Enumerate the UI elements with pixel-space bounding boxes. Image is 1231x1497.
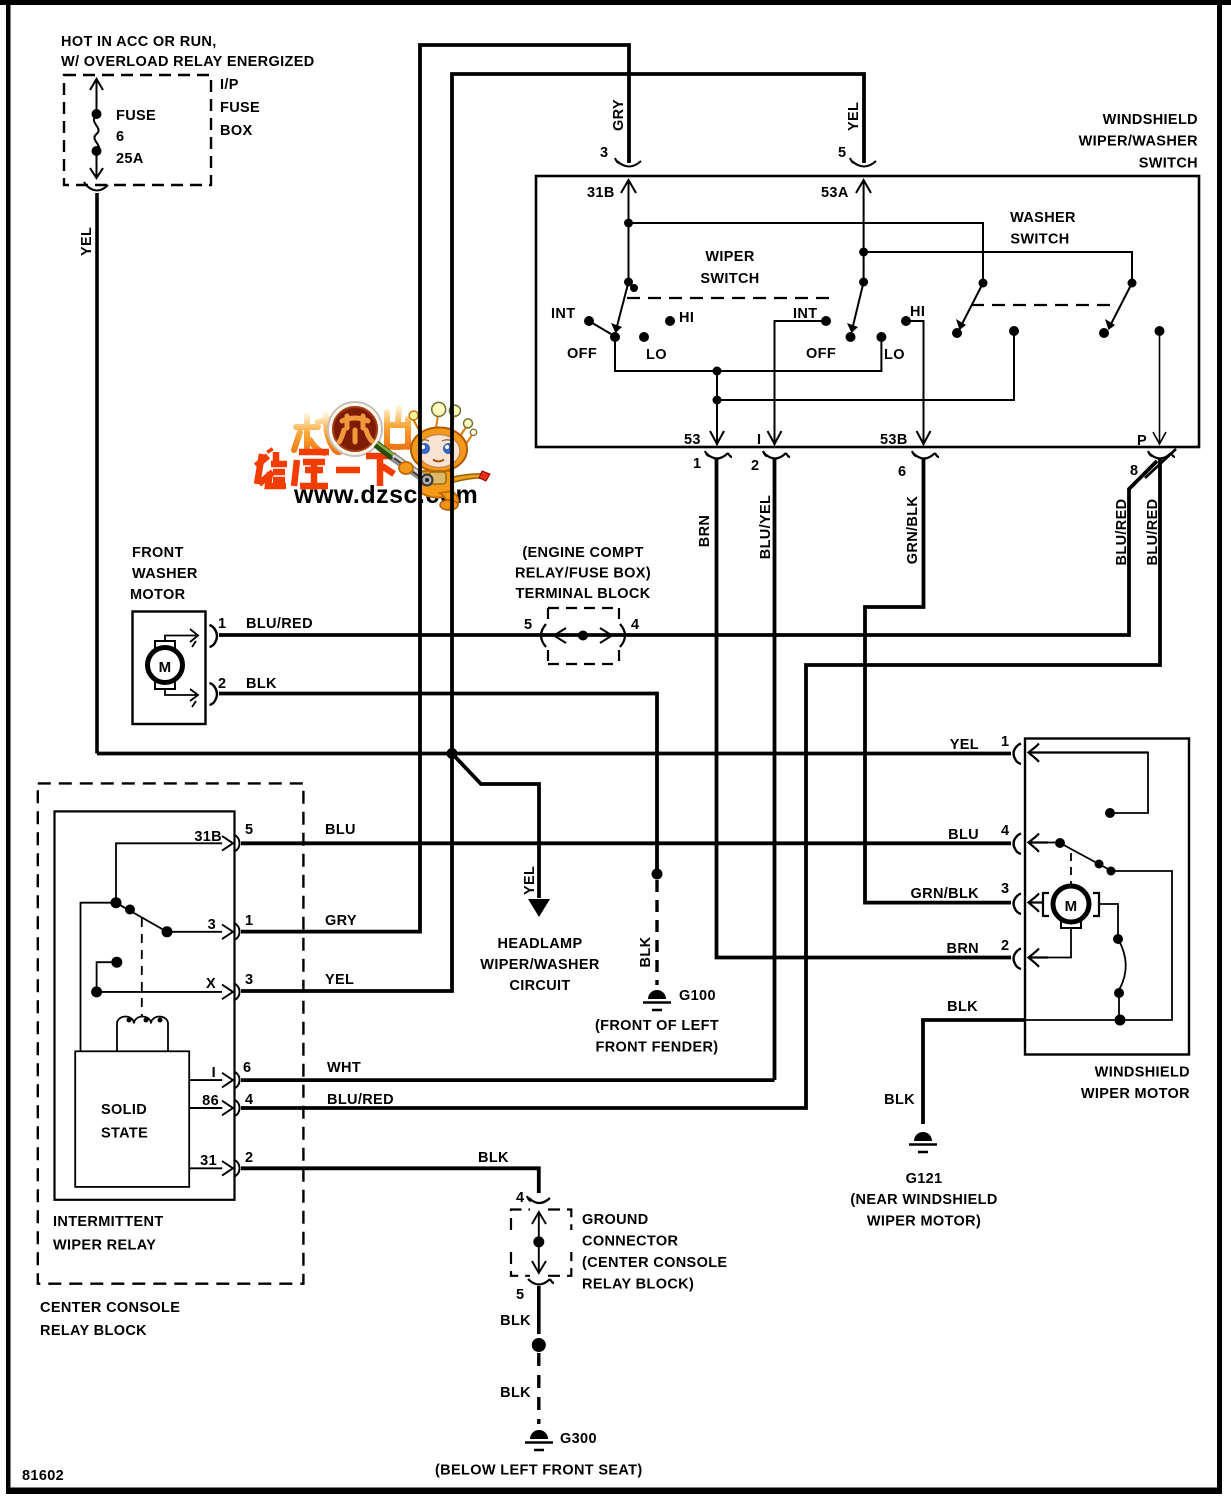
svg-text:6: 6 (898, 464, 906, 480)
svg-text:FRONT: FRONT (132, 545, 184, 561)
svg-text:RELAY BLOCK: RELAY BLOCK (40, 1323, 147, 1339)
svg-text:BOX: BOX (220, 123, 252, 139)
svg-text:INT: INT (793, 306, 817, 322)
svg-text:G100: G100 (679, 988, 716, 1004)
svg-text:STATE: STATE (101, 1126, 148, 1142)
svg-text:WIPER/WASHER: WIPER/WASHER (480, 957, 600, 973)
svg-text:WIPER RELAY: WIPER RELAY (53, 1238, 156, 1254)
svg-text:4: 4 (245, 1092, 253, 1108)
svg-text:BLK: BLK (947, 999, 978, 1015)
svg-text:25A: 25A (116, 151, 144, 167)
svg-text:WIPER: WIPER (705, 249, 754, 265)
svg-text:LO: LO (884, 347, 905, 363)
svg-text:BLK: BLK (246, 676, 277, 692)
svg-text:YEL: YEL (522, 866, 538, 895)
svg-text:BLK: BLK (500, 1313, 531, 1329)
svg-text:(BELOW LEFT FRONT SEAT): (BELOW LEFT FRONT SEAT) (435, 1463, 643, 1479)
svg-text:GRY: GRY (611, 99, 627, 131)
svg-text:6: 6 (116, 129, 124, 145)
svg-text:1: 1 (1001, 734, 1009, 750)
svg-text:BLU/RED: BLU/RED (1114, 499, 1130, 566)
svg-text:81602: 81602 (22, 1468, 64, 1484)
svg-text:INT: INT (551, 306, 575, 322)
svg-text:I: I (757, 432, 761, 448)
svg-text:G121: G121 (906, 1171, 943, 1187)
svg-text:BRN: BRN (697, 515, 713, 547)
svg-text:BLU: BLU (325, 822, 356, 838)
svg-text:3: 3 (245, 972, 253, 988)
svg-text:(ENGINE COMPT: (ENGINE COMPT (522, 545, 643, 561)
svg-text:1: 1 (693, 456, 701, 472)
svg-text:SWITCH: SWITCH (1139, 156, 1198, 172)
svg-text:M: M (159, 659, 172, 676)
svg-text:WIPER MOTOR): WIPER MOTOR) (867, 1214, 981, 1230)
svg-text:2: 2 (751, 458, 759, 474)
svg-text:MOTOR: MOTOR (130, 587, 186, 603)
svg-text:1: 1 (218, 616, 226, 632)
svg-text:M: M (1065, 898, 1078, 915)
svg-text:RELAY BLOCK): RELAY BLOCK) (582, 1277, 694, 1293)
svg-text:YEL: YEL (846, 102, 862, 131)
svg-text:1: 1 (245, 913, 253, 929)
svg-text:BLU/RED: BLU/RED (246, 616, 313, 632)
svg-text:31: 31 (200, 1153, 217, 1169)
svg-text:FUSE: FUSE (220, 100, 260, 116)
svg-text:GRY: GRY (325, 913, 357, 929)
svg-text:86: 86 (202, 1093, 219, 1109)
svg-text:X: X (206, 976, 216, 992)
svg-text:RELAY/FUSE BOX): RELAY/FUSE BOX) (515, 566, 651, 582)
svg-text:WINDSHIELD: WINDSHIELD (1095, 1065, 1190, 1081)
svg-text:SWITCH: SWITCH (700, 271, 759, 287)
svg-text:WIPER MOTOR: WIPER MOTOR (1081, 1086, 1190, 1102)
svg-text:OFF: OFF (567, 346, 597, 362)
svg-text:WHT: WHT (327, 1060, 361, 1076)
svg-text:SWITCH: SWITCH (1010, 232, 1069, 248)
svg-text:5: 5 (516, 1287, 524, 1303)
svg-text:GRN/BLK: GRN/BLK (911, 886, 980, 902)
svg-text:FRONT FENDER): FRONT FENDER) (596, 1040, 719, 1056)
svg-text:WASHER: WASHER (1010, 210, 1076, 226)
svg-text:FUSE: FUSE (116, 108, 156, 124)
svg-text:YEL: YEL (950, 737, 979, 753)
svg-text:BLK: BLK (478, 1150, 509, 1166)
svg-text:(CENTER CONSOLE: (CENTER CONSOLE (582, 1255, 727, 1271)
svg-text:53A: 53A (821, 185, 849, 201)
svg-text:I/P: I/P (220, 77, 239, 93)
svg-text:P: P (1137, 433, 1147, 449)
svg-text:BLU/RED: BLU/RED (327, 1092, 394, 1108)
svg-text:BLU/YEL: BLU/YEL (758, 495, 774, 559)
svg-text:W/ OVERLOAD RELAY ENERGIZED: W/ OVERLOAD RELAY ENERGIZED (61, 54, 315, 70)
svg-text:INTERMITTENT: INTERMITTENT (53, 1214, 164, 1230)
svg-text:HI: HI (910, 304, 925, 320)
svg-text:3: 3 (600, 145, 608, 161)
svg-text:4: 4 (516, 1190, 524, 1206)
svg-text:CIRCUIT: CIRCUIT (509, 978, 570, 994)
svg-text:GROUND: GROUND (582, 1212, 649, 1228)
svg-text:OFF: OFF (806, 346, 836, 362)
svg-text:LO: LO (646, 347, 667, 363)
svg-text:53: 53 (684, 432, 701, 448)
svg-text:4: 4 (631, 617, 639, 633)
svg-text:TERMINAL BLOCK: TERMINAL BLOCK (515, 586, 650, 602)
svg-text:3: 3 (208, 917, 216, 933)
svg-text:WIPER/WASHER: WIPER/WASHER (1079, 134, 1199, 150)
svg-text:CONNECTOR: CONNECTOR (582, 1234, 679, 1250)
svg-text:HOT IN ACC OR RUN,: HOT IN ACC OR RUN, (61, 34, 217, 50)
svg-text:WINDSHIELD: WINDSHIELD (1103, 112, 1198, 128)
svg-text:5: 5 (524, 617, 532, 633)
svg-text:BLU/RED: BLU/RED (1145, 499, 1161, 566)
svg-text:4: 4 (1001, 823, 1009, 839)
svg-text:I: I (212, 1065, 216, 1081)
svg-text:G300: G300 (560, 1431, 597, 1447)
svg-text:31B: 31B (587, 185, 615, 201)
svg-text:5: 5 (245, 822, 253, 838)
svg-text:BLU: BLU (948, 827, 979, 843)
svg-text:5: 5 (838, 145, 846, 161)
svg-text:6: 6 (243, 1060, 251, 1076)
svg-text:SOLID: SOLID (101, 1102, 147, 1118)
svg-text:YEL: YEL (79, 227, 95, 256)
svg-text:53B: 53B (880, 432, 908, 448)
svg-text:GRN/BLK: GRN/BLK (905, 496, 921, 565)
svg-text:(NEAR WINDSHIELD: (NEAR WINDSHIELD (850, 1192, 997, 1208)
svg-text:8: 8 (1130, 463, 1138, 479)
svg-text:3: 3 (1001, 881, 1009, 897)
svg-text:CENTER CONSOLE: CENTER CONSOLE (40, 1300, 180, 1316)
svg-text:BLK: BLK (638, 936, 654, 967)
svg-text:BRN: BRN (947, 941, 979, 957)
svg-text:BLK: BLK (500, 1385, 531, 1401)
svg-text:HEADLAMP: HEADLAMP (498, 936, 583, 952)
svg-text:HI: HI (679, 310, 694, 326)
svg-text:2: 2 (1001, 938, 1009, 954)
svg-text:BLK: BLK (884, 1092, 915, 1108)
svg-text:(FRONT OF LEFT: (FRONT OF LEFT (595, 1018, 719, 1034)
svg-text:WASHER: WASHER (132, 566, 198, 582)
svg-text:2: 2 (218, 676, 226, 692)
svg-text:YEL: YEL (325, 972, 354, 988)
svg-text:2: 2 (245, 1150, 253, 1166)
